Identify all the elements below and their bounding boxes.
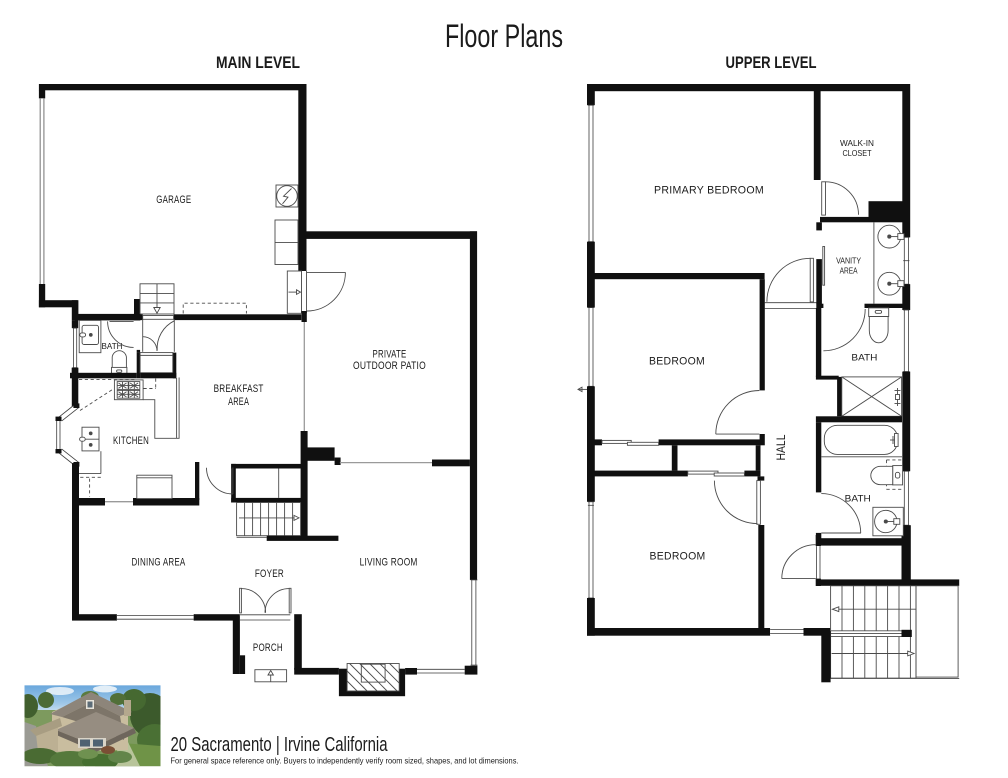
- svg-text:BATH: BATH: [845, 493, 871, 504]
- svg-text:KITCHEN: KITCHEN: [113, 435, 149, 447]
- svg-text:GARAGE: GARAGE: [156, 194, 191, 206]
- svg-text:FOYER: FOYER: [255, 568, 284, 580]
- svg-text:VANITY: VANITY: [836, 255, 861, 265]
- svg-text:Floor Plans: Floor Plans: [445, 18, 563, 54]
- svg-text:BEDROOM: BEDROOM: [649, 356, 705, 368]
- svg-text:PORCH: PORCH: [253, 642, 283, 654]
- svg-text:WALK-IN: WALK-IN: [840, 138, 874, 148]
- svg-text:DINING AREA: DINING AREA: [132, 556, 186, 568]
- svg-text:PRIVATE: PRIVATE: [373, 349, 407, 361]
- svg-text:BATH: BATH: [851, 352, 877, 363]
- svg-text:UPPER LEVEL: UPPER LEVEL: [726, 54, 817, 72]
- svg-text:AREA: AREA: [228, 396, 249, 408]
- svg-text:For general space reference on: For general space reference only. Buyers…: [171, 756, 519, 766]
- svg-text:PRIMARY BEDROOM: PRIMARY BEDROOM: [654, 185, 764, 197]
- svg-text:HALL: HALL: [776, 434, 788, 461]
- svg-text:BEDROOM: BEDROOM: [650, 551, 706, 563]
- svg-text:20 Sacramento | Irvine Califor: 20 Sacramento | Irvine California: [171, 733, 388, 756]
- svg-text:OUTDOOR PATIO: OUTDOOR PATIO: [353, 360, 426, 372]
- svg-text:LIVING ROOM: LIVING ROOM: [360, 557, 418, 569]
- svg-text:MAIN LEVEL: MAIN LEVEL: [216, 54, 300, 72]
- svg-text:AREA: AREA: [840, 265, 858, 275]
- svg-text:BREAKFAST: BREAKFAST: [214, 383, 264, 395]
- svg-text:CLOSET: CLOSET: [843, 148, 872, 158]
